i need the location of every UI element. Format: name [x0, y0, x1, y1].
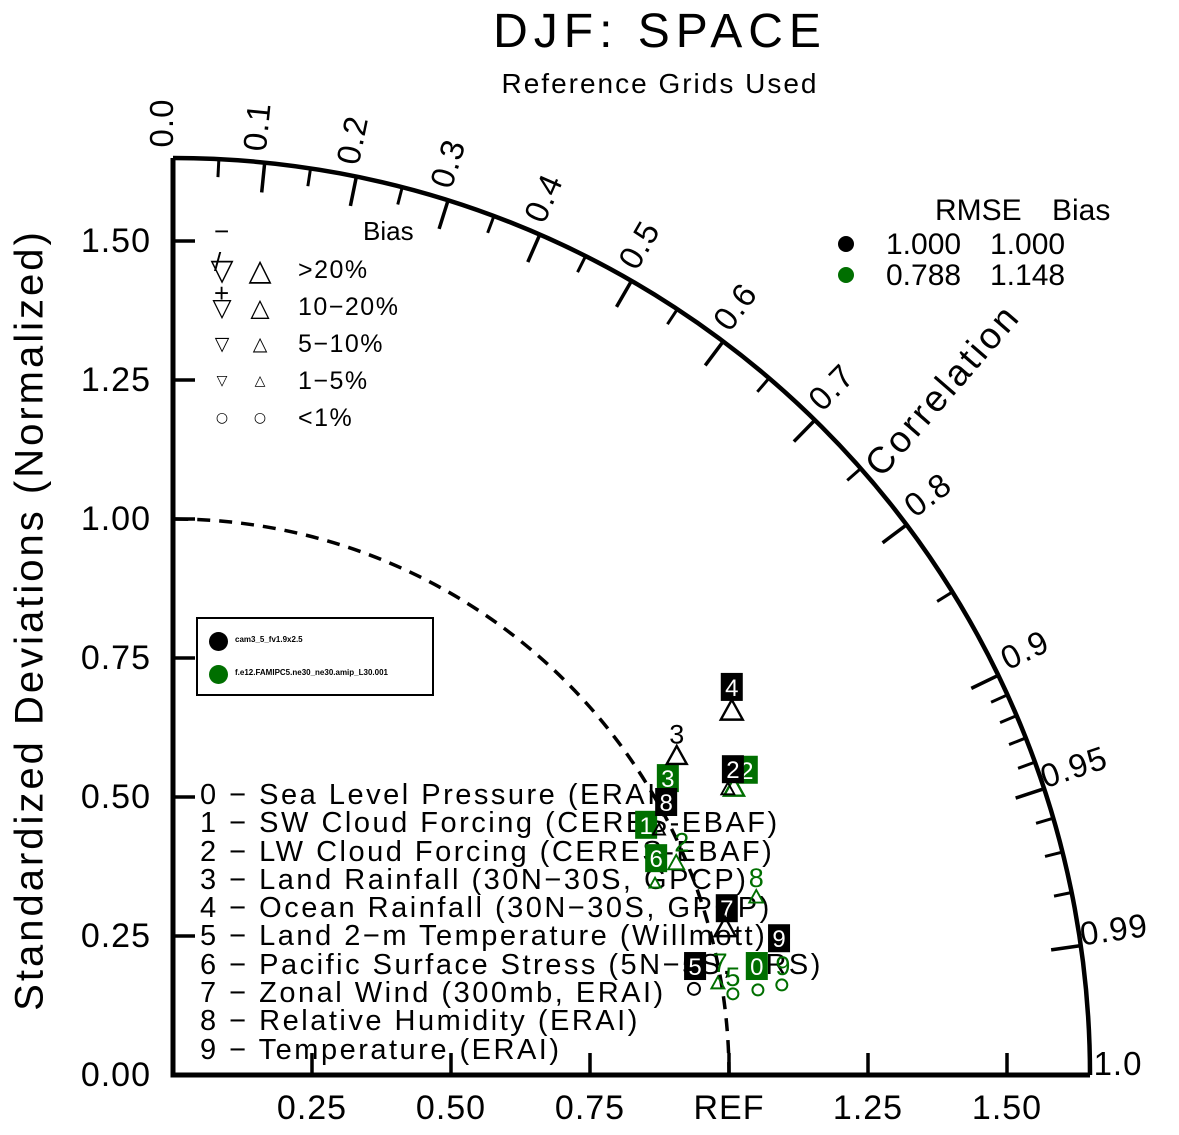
correlation-tick: [1045, 852, 1062, 856]
correlation-tick: [1036, 818, 1053, 823]
correlation-tick: [350, 177, 356, 206]
correlation-tick: [667, 309, 677, 324]
correlation-tick-label: 0.95: [1036, 739, 1112, 795]
bias-legend-row-label: <1%: [298, 400, 353, 437]
x-axis-tick-label: 1.50: [972, 1089, 1042, 1127]
triangle-down-icon: ▽: [204, 289, 240, 326]
variable-list-item: 8 − Relative Humidity (ERAI): [200, 1007, 823, 1035]
rmse-value: 1.000: [886, 228, 961, 262]
variable-list-item: 4 − Ocean Rainfall (30N−30S, GPCP): [200, 894, 823, 922]
correlation-tick: [937, 592, 952, 601]
triangle-down-icon: ○: [204, 400, 240, 437]
correlation-tick: [308, 168, 311, 186]
correlation-tick: [1000, 716, 1017, 723]
correlation-tick: [528, 235, 540, 262]
bias-legend-row-label: 5−10%: [298, 326, 384, 363]
variable-list-item: 7 − Zonal Wind (300mb, ERAI): [200, 979, 823, 1007]
bias-legend-title: Bias: [363, 216, 414, 247]
correlation-tick-label: 1.0: [1094, 1045, 1143, 1082]
y-axis-tick-label: 0.00: [81, 1056, 151, 1094]
model-name: cam3_5_fv1.9x2.5: [235, 635, 303, 644]
series1-bias-triangle: [667, 746, 687, 764]
correlation-tick: [1009, 738, 1026, 745]
model-legend-box: cam3_5_fv1.9x2.5f.e12.FAMIPC5.ne30_ne30.…: [196, 617, 434, 696]
variable-list-item: 1 − SW Cloud Forcing (CERES-EBAF): [200, 809, 823, 837]
rmse-header-label: RMSE: [935, 194, 1022, 228]
correlation-tick-label: 0.5: [611, 214, 667, 275]
correlation-tick: [847, 468, 861, 480]
y-axis-tick-label: 1.00: [81, 500, 151, 538]
model-dot-icon: [209, 632, 228, 651]
taylor-diagram: DJF: SPACE Reference Grids Used Standard…: [0, 0, 1179, 1135]
triangle-up-icon: △: [242, 363, 278, 400]
correlation-tick: [794, 420, 815, 441]
triangle-down-icon: ▽: [204, 326, 240, 363]
model-dot-icon: [838, 267, 854, 283]
correlation-axis-title: Correlation: [857, 296, 1028, 484]
x-axis-tick-label: 0.25: [277, 1089, 347, 1127]
chart-subtitle: Reference Grids Used: [501, 68, 818, 100]
bias-header-label: Bias: [1052, 194, 1110, 228]
triangle-up-icon: △: [242, 289, 278, 326]
correlation-tick: [1054, 893, 1072, 897]
bias-legend-row-label: 10−20%: [298, 289, 399, 326]
correlation-tick: [398, 187, 403, 204]
correlation-tick: [705, 341, 723, 365]
series1-point-label-3: 3: [669, 720, 684, 750]
variable-list-item: 9 − Temperature (ERAI): [200, 1036, 823, 1064]
triangle-down-icon: ▽: [204, 363, 240, 400]
triangle-up-icon: ○: [242, 400, 278, 437]
variable-list-item: 5 − Land 2−m Temperature (Willmott): [200, 922, 823, 950]
correlation-tick: [1051, 946, 1081, 950]
rmse-value: 0.788: [886, 259, 961, 293]
series1-point-label-4: 4: [725, 675, 738, 702]
y-axis-tick-label: 0.50: [81, 778, 151, 816]
variable-list-item: 2 − LW Cloud Forcing (CERES-EBAF): [200, 838, 823, 866]
x-axis-tick-label: REF: [694, 1089, 765, 1127]
variable-list-item: 6 − Pacific Surface Stress (5N−5S, ERS): [200, 951, 823, 979]
series1-point-box-4: [721, 673, 743, 701]
correlation-tick: [1016, 789, 1045, 798]
variable-list-item: 3 − Land Rainfall (30N−30S, GPCP): [200, 866, 823, 894]
correlation-tick: [617, 281, 632, 307]
x-axis-tick-label: 1.25: [833, 1089, 903, 1127]
correlation-tick-label: 0.8: [897, 465, 958, 524]
x-axis-tick-label: 0.75: [555, 1089, 625, 1127]
correlation-tick-label: 0.6: [706, 276, 765, 337]
correlation-tick-label: 0.3: [423, 135, 473, 193]
model-dot-icon: [838, 236, 854, 252]
correlation-tick-label: 0.4: [517, 168, 570, 228]
correlation-tick-label: 0.2: [329, 112, 375, 167]
correlation-tick: [218, 159, 219, 177]
correlation-tick-label: 0.1: [236, 100, 278, 152]
correlation-tick-label: 0.99: [1077, 906, 1150, 952]
correlation-tick-label: 0.9: [995, 622, 1055, 677]
series2-point-box-2: [736, 756, 758, 784]
model-dot-icon: [209, 665, 228, 684]
correlation-tick-label: 0.0: [143, 99, 180, 148]
series1-bias-triangle: [721, 700, 743, 720]
correlation-tick-label: 0.7: [801, 357, 862, 418]
variable-list: 0 − Sea Level Pressure (ERAI)1 − SW Clou…: [200, 781, 823, 1064]
bias-legend-row-label: 1−5%: [298, 363, 369, 400]
correlation-tick: [488, 216, 494, 233]
series1-point-box-2: [722, 755, 744, 783]
y-axis-tick-label: 0.75: [81, 639, 151, 677]
variable-list-item: 0 − Sea Level Pressure (ERAI): [200, 781, 823, 809]
correlation-tick: [439, 200, 448, 229]
correlation-tick: [883, 525, 907, 543]
correlation-tick: [757, 378, 769, 392]
triangle-down-icon: ▽: [204, 252, 240, 289]
correlation-tick: [971, 675, 998, 688]
triangle-up-icon: △: [242, 326, 278, 363]
correlation-tick: [578, 256, 586, 272]
triangle-up-icon: △: [242, 252, 278, 289]
page-title: DJF: SPACE: [493, 4, 827, 59]
correlation-tick: [262, 163, 265, 193]
y-axis-title: Standardized Deviations (Normalized): [8, 229, 53, 1011]
y-axis-tick-label: 1.50: [81, 222, 151, 260]
correlation-tick: [991, 695, 1007, 702]
model-name: f.e12.FAMIPC5.ne30_ne30.amip_L30.001: [235, 668, 388, 677]
bias-value: 1.000: [990, 228, 1065, 262]
correlation-tick: [1018, 762, 1035, 768]
bias-legend-row-label: >20%: [298, 252, 369, 289]
y-axis-tick-label: 0.25: [81, 917, 151, 955]
bias-value: 1.148: [990, 259, 1065, 293]
x-axis-tick-label: 0.50: [416, 1089, 486, 1127]
y-axis-tick-label: 1.25: [81, 361, 151, 399]
